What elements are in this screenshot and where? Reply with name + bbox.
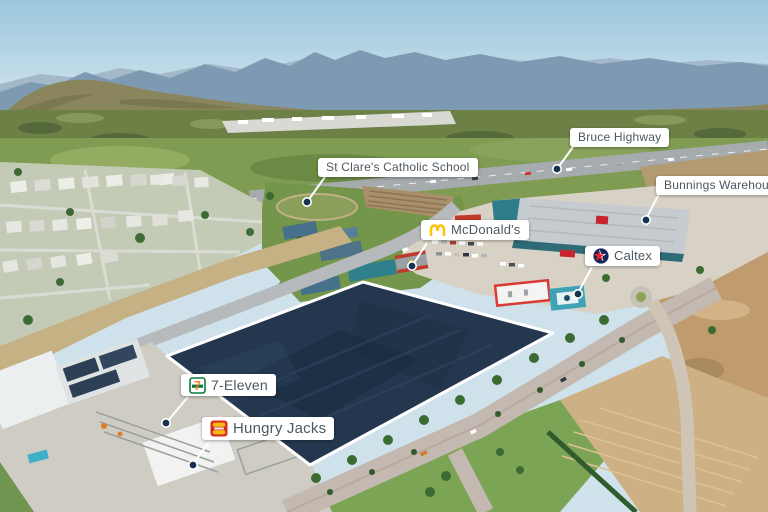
caltex-label-text: Caltex xyxy=(614,248,652,264)
label-st-clares-catholic-school: St Clare's Catholic School xyxy=(318,158,478,177)
label-hungry-jacks: Hungry Jacks xyxy=(202,417,334,440)
caltex-station xyxy=(495,280,550,305)
mcdonalds-icon xyxy=(429,223,446,237)
label-caltex: Caltex xyxy=(585,246,660,266)
bunnings-label-text: Bunnings Warehouse xyxy=(664,178,768,193)
aerial-site-photo: Bruce Highway St Clare's Catholic School… xyxy=(0,0,768,512)
bruce-highway-label-text: Bruce Highway xyxy=(578,130,661,145)
hungry-jacks-label-text: Hungry Jacks xyxy=(233,419,326,438)
label-seven-eleven: 7 7-Eleven xyxy=(181,374,276,396)
label-bruce-highway: Bruce Highway xyxy=(570,128,669,147)
svg-text:7: 7 xyxy=(194,379,201,393)
mcdonalds-label-text: McDonald's xyxy=(451,222,521,238)
orange-equipment-2 xyxy=(118,432,123,437)
school-oval xyxy=(277,194,357,220)
st-clares-label-text: St Clare's Catholic School xyxy=(326,160,470,175)
label-bunnings-warehouse: Bunnings Warehouse xyxy=(656,176,768,195)
caltex-icon xyxy=(593,248,609,264)
hungry-jacks-icon xyxy=(210,420,228,437)
label-mcdonalds: McDonald's xyxy=(421,220,529,240)
seven-eleven-icon: 7 xyxy=(189,377,206,394)
carwash-building xyxy=(549,285,586,311)
seven-eleven-label-text: 7-Eleven xyxy=(211,376,268,394)
orange-equipment xyxy=(101,423,107,429)
